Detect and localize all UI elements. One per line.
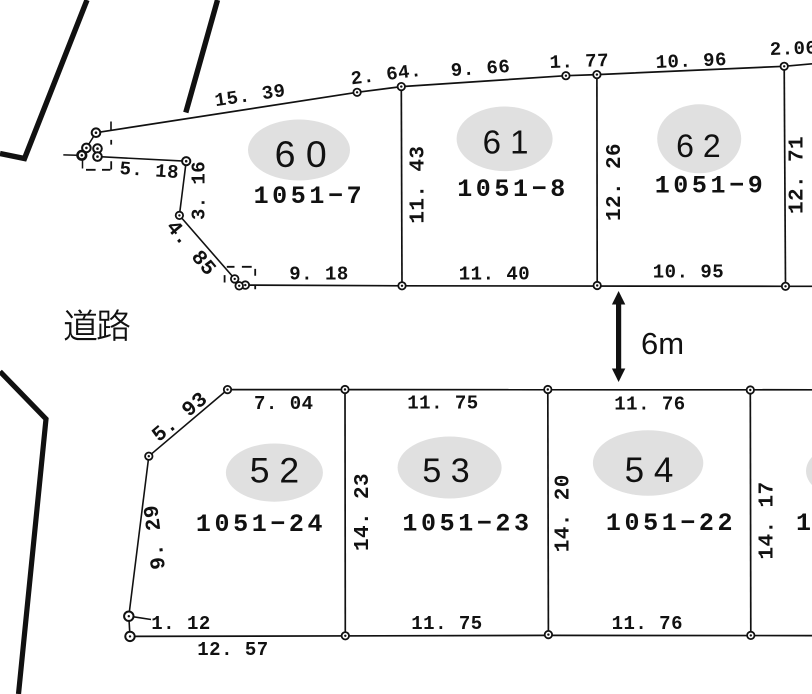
svg-text:11. 76: 11. 76 (614, 394, 685, 416)
svg-text:11. 76: 11. 76 (612, 613, 683, 635)
svg-text:12. 26: 12. 26 (604, 143, 627, 221)
svg-text:3. 16: 3. 16 (189, 161, 211, 220)
svg-text:9. 66: 9. 66 (450, 56, 511, 82)
svg-text:10: 10 (796, 509, 812, 538)
svg-text:1. 77: 1. 77 (549, 50, 609, 74)
svg-text:11. 75: 11. 75 (407, 392, 478, 414)
svg-text:11. 40: 11. 40 (459, 263, 530, 285)
svg-text:5 3: 5 3 (422, 452, 469, 490)
svg-text:9. 18: 9. 18 (289, 264, 349, 286)
svg-text:6 2: 6 2 (676, 128, 720, 164)
svg-text:6m: 6m (641, 326, 684, 361)
svg-text:1. 12: 1. 12 (151, 613, 211, 635)
svg-text:5. 18: 5. 18 (119, 158, 180, 184)
svg-text:6 1: 6 1 (483, 124, 529, 161)
svg-text:1051−9: 1051−9 (655, 172, 767, 201)
svg-text:12. 71: 12. 71 (787, 136, 810, 214)
svg-text:2.06: 2.06 (769, 37, 812, 61)
svg-text:14. 23: 14. 23 (352, 473, 375, 551)
svg-text:1051−7: 1051−7 (254, 182, 366, 211)
svg-text:5 2: 5 2 (250, 450, 299, 490)
svg-text:5 4: 5 4 (625, 451, 674, 490)
svg-text:1051−24: 1051−24 (196, 510, 326, 539)
svg-text:1051−23: 1051−23 (402, 509, 532, 538)
svg-text:6 0: 6 0 (275, 133, 327, 175)
svg-text:12. 57: 12. 57 (197, 639, 268, 661)
svg-text:10. 95: 10. 95 (653, 262, 724, 284)
svg-text:1051−22: 1051−22 (606, 509, 736, 538)
svg-text:7. 04: 7. 04 (254, 393, 314, 415)
svg-text:11. 75: 11. 75 (411, 613, 482, 635)
svg-text:14. 20: 14. 20 (553, 474, 576, 552)
svg-text:14. 17: 14. 17 (757, 481, 780, 559)
svg-text:11. 43: 11. 43 (408, 146, 431, 224)
svg-text:10. 96: 10. 96 (655, 49, 727, 74)
svg-text:1051−8: 1051−8 (457, 175, 569, 204)
